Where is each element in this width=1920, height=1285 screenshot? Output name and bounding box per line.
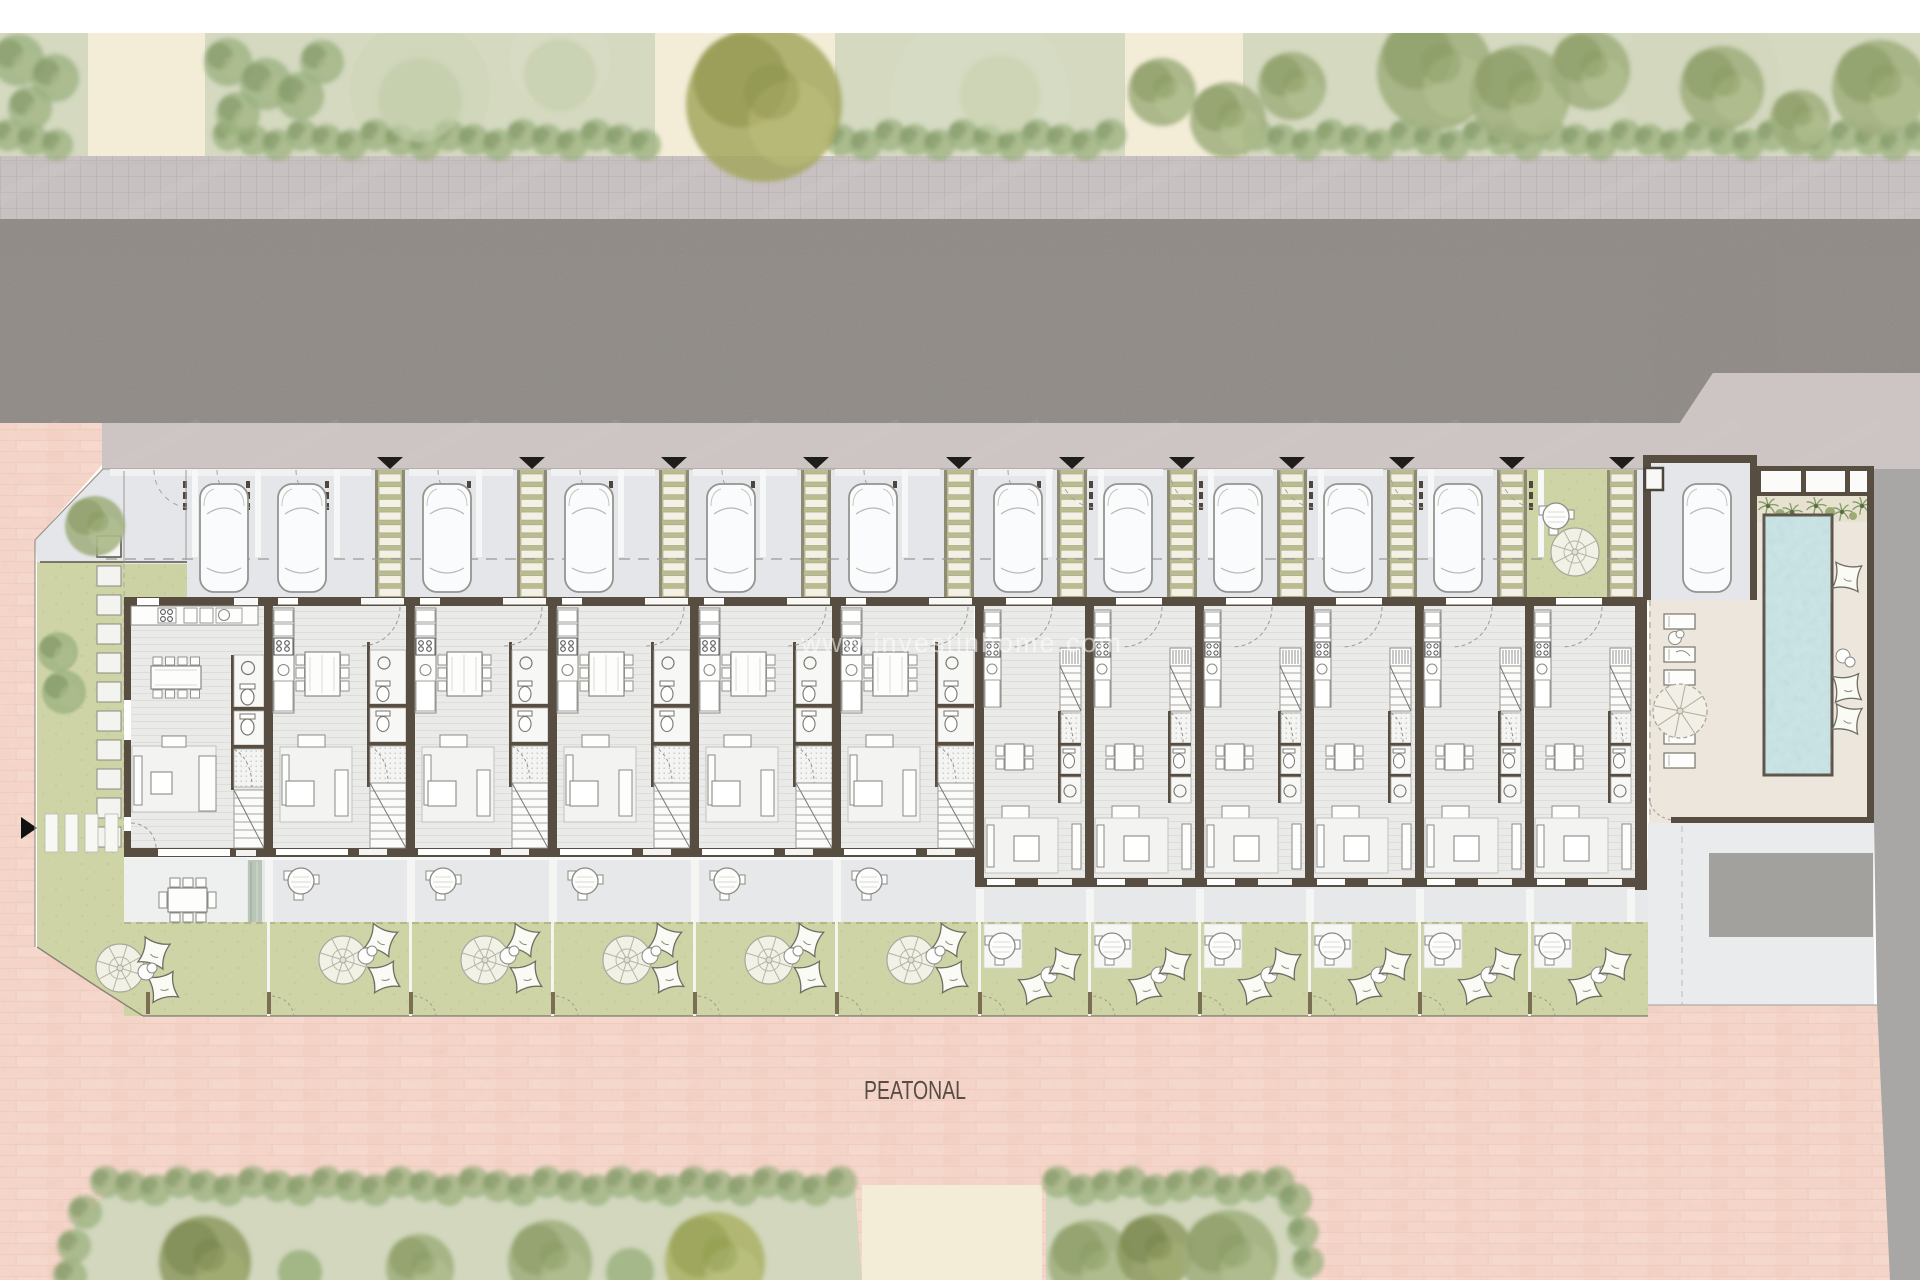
svg-text:PEATONAL: PEATONAL xyxy=(864,1075,966,1105)
svg-text:www.investinhome.com: www.investinhome.com xyxy=(800,628,1123,658)
